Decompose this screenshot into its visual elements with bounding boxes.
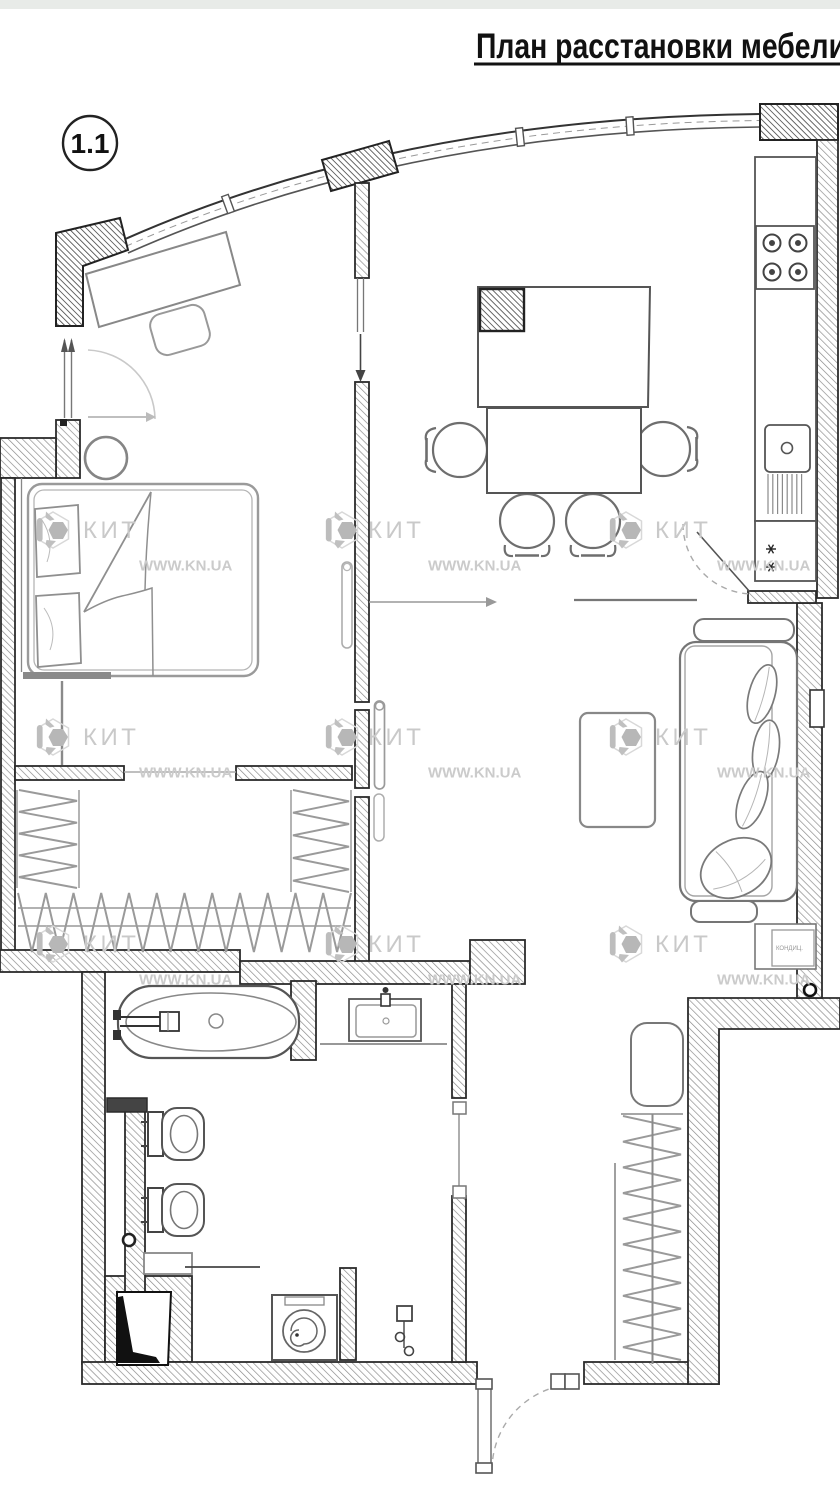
svg-text:КИТ: КИТ [655,724,711,751]
svg-text:WWW.KN.UA: WWW.KN.UA [139,765,232,782]
svg-text:КИТ: КИТ [368,517,424,544]
svg-text:WWW.KN.UA: WWW.KN.UA [428,765,521,782]
svg-text:КИТ: КИТ [368,724,424,751]
svg-text:КИТ: КИТ [655,517,711,544]
svg-text:План расстановки мебели: План расстановки мебели [476,27,840,66]
svg-text:КИТ: КИТ [368,931,424,958]
svg-text:WWW.KN.UA: WWW.KN.UA [717,765,810,782]
svg-text:КИТ: КИТ [655,931,711,958]
svg-text:КИТ: КИТ [83,931,139,958]
svg-text:КИТ: КИТ [83,724,139,751]
svg-text:WWW.KN.UA: WWW.KN.UA [717,972,810,989]
svg-text:1.1: 1.1 [71,128,110,159]
svg-text:КИТ: КИТ [83,517,139,544]
svg-text:WWW.KN.UA: WWW.KN.UA [428,972,521,989]
svg-text:WWW.KN.UA: WWW.KN.UA [717,558,810,575]
svg-text:WWW.KN.UA: WWW.KN.UA [428,558,521,575]
svg-text:WWW.KN.UA: WWW.KN.UA [139,558,232,575]
svg-text:WWW.KN.UA: WWW.KN.UA [139,972,232,989]
svg-text:КОНДИЦ.: КОНДИЦ. [776,946,803,952]
